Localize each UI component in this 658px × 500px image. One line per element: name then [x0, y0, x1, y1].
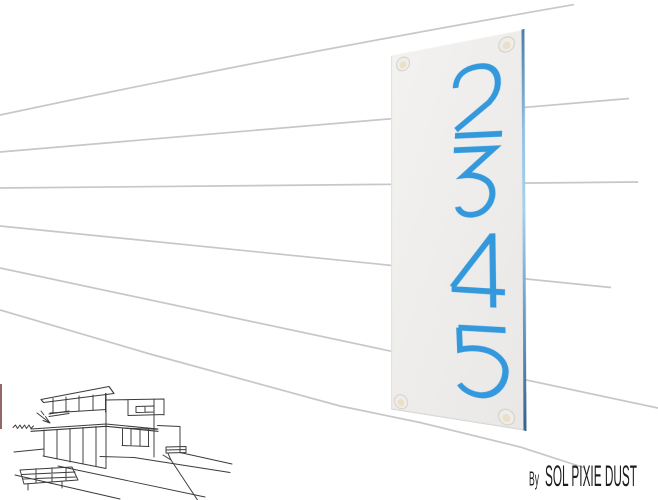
svg-text:SOL PIXIE DUST: SOL PIXIE DUST: [545, 458, 637, 492]
svg-text:By: By: [529, 467, 539, 490]
